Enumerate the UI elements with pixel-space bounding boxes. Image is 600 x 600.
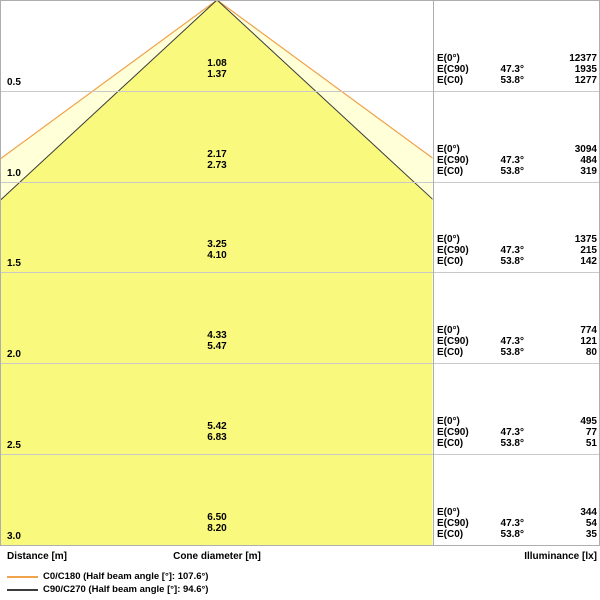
- illuminance-value: 12377: [569, 53, 597, 64]
- illuminance-value: 35: [586, 529, 597, 540]
- row-label: E(C0): [437, 166, 463, 177]
- cone-diameter-c90: 5.42: [157, 421, 277, 432]
- illuminance-row-ec90: E(C90) 47.3° 484: [437, 155, 597, 166]
- half-angle: 47.3°: [501, 336, 524, 347]
- cone-diameter-c0: 4.10: [157, 250, 277, 261]
- half-angle: 53.8°: [501, 347, 524, 358]
- illuminance-value: 344: [580, 507, 597, 518]
- illuminance-row-ec0: E(C0) 53.8° 1277: [437, 75, 597, 86]
- chart-border-top: [0, 0, 600, 1]
- table-divider: [433, 0, 434, 546]
- cone-plot: [0, 0, 433, 546]
- cone-diameter-c90: 6.50: [157, 512, 277, 523]
- illuminance-row-ec0: E(C0) 53.8° 51: [437, 438, 597, 449]
- illuminance-axis-label: Illuminance [lx]: [524, 551, 597, 563]
- illuminance-row-ec90: E(C90) 47.3° 1935: [437, 64, 597, 75]
- row-label: E(0°): [437, 144, 460, 155]
- illuminance-value: 142: [580, 256, 597, 267]
- illuminance-value: 77: [586, 427, 597, 438]
- illuminance-value: 3094: [575, 144, 597, 155]
- row-label: E(C90): [437, 155, 469, 166]
- cone-diameter-c90: 4.33: [157, 330, 277, 341]
- cone-diagram: 0.5 1.0 1.5 2.0 2.5 3.0 1.08 1.37 2.17 2…: [0, 0, 600, 600]
- half-angle: 47.3°: [501, 155, 524, 166]
- distance-axis-label: Distance [m]: [7, 551, 67, 563]
- distance-label: 0.5: [7, 76, 21, 90]
- illuminance-row-ec90: E(C90) 47.3° 215: [437, 245, 597, 256]
- row-label: E(0°): [437, 234, 460, 245]
- illuminance-row-e0: E(0°) 774: [437, 325, 597, 336]
- cone-diameter-c0: 8.20: [157, 523, 277, 534]
- half-angle: 53.8°: [501, 438, 524, 449]
- illuminance-row-ec0: E(C0) 53.8° 142: [437, 256, 597, 267]
- row-label: E(C90): [437, 427, 469, 438]
- cone-diameter-c90: 3.25: [157, 239, 277, 250]
- illuminance-row-e0: E(0°) 1375: [437, 234, 597, 245]
- illuminance-value: 80: [586, 347, 597, 358]
- illuminance-value: 1375: [575, 234, 597, 245]
- half-angle: 53.8°: [501, 529, 524, 540]
- gridline-0.5: [0, 91, 600, 92]
- illuminance-value: 121: [580, 336, 597, 347]
- distance-label: 1.5: [7, 257, 21, 271]
- row-label: E(C90): [437, 518, 469, 529]
- gridline-2.0: [0, 363, 600, 364]
- illuminance-row-e0: E(0°) 3094: [437, 144, 597, 155]
- legend-line-c90-c270-icon: [7, 589, 38, 591]
- row-label: E(0°): [437, 53, 460, 64]
- cone-diameter-c0: 6.83: [157, 432, 277, 443]
- illuminance-row-ec90: E(C90) 47.3° 121: [437, 336, 597, 347]
- row-label: E(C0): [437, 529, 463, 540]
- illuminance-row-ec90: E(C90) 47.3° 77: [437, 427, 597, 438]
- illuminance-value: 215: [580, 245, 597, 256]
- illuminance-value: 54: [586, 518, 597, 529]
- cone-diameter-axis-label: Cone diameter [m]: [157, 551, 277, 563]
- distance-label: 2.0: [7, 348, 21, 362]
- row-label: E(C90): [437, 64, 469, 75]
- gridline-1.5: [0, 272, 600, 273]
- illuminance-row-ec0: E(C0) 53.8° 80: [437, 347, 597, 358]
- row-label: E(C0): [437, 75, 463, 86]
- illuminance-row-ec0: E(C0) 53.8° 35: [437, 529, 597, 540]
- half-angle: 47.3°: [501, 64, 524, 75]
- legend-label-c0-c180: C0/C180 (Half beam angle [°]: 107.6°): [43, 571, 208, 582]
- cone-diameter-c90: 2.17: [157, 149, 277, 160]
- row-label: E(0°): [437, 507, 460, 518]
- illuminance-value: 1277: [575, 75, 597, 86]
- illuminance-value: 51: [586, 438, 597, 449]
- cone-diameter-c90: 1.08: [157, 58, 277, 69]
- cone-diameter-values: 6.50 8.20: [157, 512, 277, 534]
- legend-line-c0-c180-icon: [7, 576, 38, 578]
- half-angle: 53.8°: [501, 256, 524, 267]
- illuminance-row-e0: E(0°) 12377: [437, 53, 597, 64]
- chart-border-bottom: [0, 545, 600, 546]
- cone-c90-c270: [0, 0, 433, 546]
- legend-label-c90-c270: C90/C270 (Half beam angle [°]: 94.6°): [43, 584, 208, 595]
- gridline-2.5: [0, 454, 600, 455]
- cone-diameter-values: 3.25 4.10: [157, 239, 277, 261]
- row-label: E(C90): [437, 336, 469, 347]
- cone-diameter-values: 1.08 1.37: [157, 58, 277, 80]
- row-label: E(C90): [437, 245, 469, 256]
- half-angle: 47.3°: [501, 518, 524, 529]
- distance-label: 1.0: [7, 167, 21, 181]
- half-angle: 53.8°: [501, 75, 524, 86]
- cone-diameter-values: 2.17 2.73: [157, 149, 277, 171]
- half-angle: 47.3°: [501, 245, 524, 256]
- row-label: E(C0): [437, 347, 463, 358]
- row-label: E(0°): [437, 325, 460, 336]
- cone-diameter-c0: 1.37: [157, 69, 277, 80]
- illuminance-row-e0: E(0°) 495: [437, 416, 597, 427]
- illuminance-value: 319: [580, 166, 597, 177]
- illuminance-value: 1935: [575, 64, 597, 75]
- distance-label: 3.0: [7, 530, 21, 544]
- cone-diameter-values: 4.33 5.47: [157, 330, 277, 352]
- illuminance-value: 774: [580, 325, 597, 336]
- cone-diameter-c0: 2.73: [157, 160, 277, 171]
- row-label: E(0°): [437, 416, 460, 427]
- cone-diameter-values: 5.42 6.83: [157, 421, 277, 443]
- half-angle: 47.3°: [501, 427, 524, 438]
- illuminance-row-ec0: E(C0) 53.8° 319: [437, 166, 597, 177]
- cone-diameter-c0: 5.47: [157, 341, 277, 352]
- distance-label: 2.5: [7, 439, 21, 453]
- illuminance-value: 484: [580, 155, 597, 166]
- row-label: E(C0): [437, 438, 463, 449]
- illuminance-row-ec90: E(C90) 47.3° 54: [437, 518, 597, 529]
- chart-border-left: [0, 0, 1, 546]
- gridline-1.0: [0, 182, 600, 183]
- half-angle: 53.8°: [501, 166, 524, 177]
- illuminance-value: 495: [580, 416, 597, 427]
- row-label: E(C0): [437, 256, 463, 267]
- illuminance-row-e0: E(0°) 344: [437, 507, 597, 518]
